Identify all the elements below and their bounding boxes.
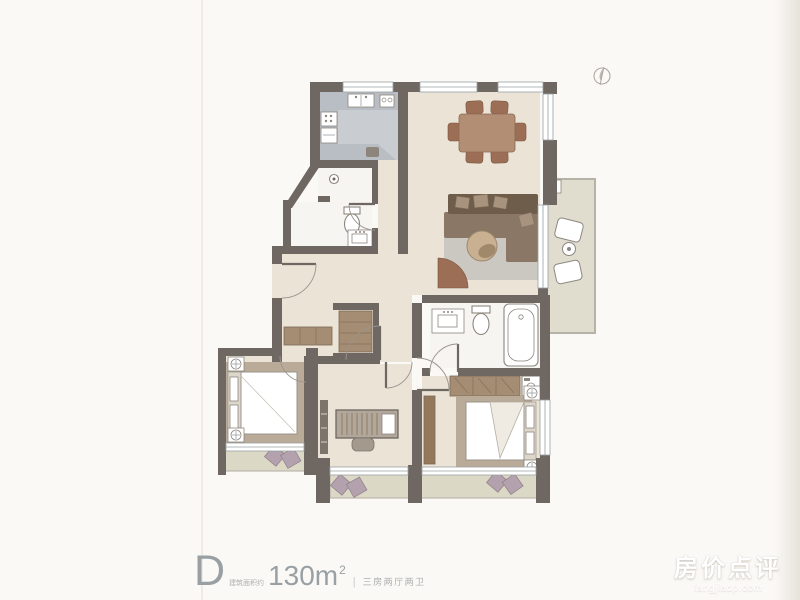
faucet-dot (363, 231, 365, 233)
dining-chair (448, 123, 460, 141)
hall-floor (378, 160, 398, 254)
wc-basin (352, 234, 367, 243)
burner-dot (325, 115, 327, 117)
burner-dot (325, 120, 327, 122)
cooktop-unit (321, 112, 337, 126)
compass-north-icon (592, 66, 611, 87)
bed-pillow (526, 432, 534, 454)
balcony-table-center (567, 247, 571, 251)
area-note: 建筑面积约 (229, 578, 264, 588)
bed-pillow (230, 377, 238, 401)
washer-panel (524, 378, 530, 381)
dining-table (459, 114, 515, 152)
dining-chair (466, 101, 484, 115)
faucet-dot (359, 231, 361, 233)
unit-caption: D 建筑面积约 130m 2 | 三房两厅两卫 (194, 550, 426, 593)
scan-edge-shadow (774, 0, 800, 600)
toilet-tank (472, 306, 490, 313)
burner-dot (330, 120, 332, 122)
bookshelf (320, 400, 328, 454)
toilet-bowl (473, 314, 489, 335)
area-value: 130m (268, 560, 338, 592)
shower-partition (318, 196, 330, 202)
basin (438, 315, 457, 327)
desk-pad (382, 414, 395, 434)
fridge (321, 128, 337, 143)
bed-pillow (526, 406, 534, 428)
bed-pillow (230, 405, 238, 429)
tall-cabinet (424, 396, 435, 464)
kettle (366, 147, 379, 157)
bed (241, 372, 297, 434)
unit-letter: D (194, 550, 225, 593)
dining-chair (514, 123, 526, 141)
burner-dot (330, 115, 332, 117)
entry-bench (284, 327, 332, 345)
room-layout-text: 三房两厅两卫 (363, 575, 426, 588)
faucet-dot (365, 96, 367, 98)
faucet-dot (443, 311, 445, 313)
sofa-pillow (473, 194, 488, 207)
area-exponent: 2 (339, 563, 346, 577)
living-set (438, 194, 540, 288)
toilet-tank (344, 207, 360, 214)
faucet-dot (451, 311, 453, 313)
desk-chair (352, 438, 374, 451)
caption-divider: | (353, 576, 356, 588)
scanned-floorplan-page: D 建筑面积约 130m 2 | 三房两厅两卫 房价点评 fangjiadp.c… (0, 0, 800, 600)
faucet-dot (355, 231, 357, 233)
floorplan-drawing (0, 0, 800, 600)
sofa-pillow (493, 196, 508, 209)
closet-shelf (339, 311, 372, 352)
bathtub-inner (508, 309, 534, 361)
dining-chair (491, 101, 509, 115)
sofa-pillow (455, 196, 469, 209)
faucet-dot (447, 311, 449, 313)
faucet-dot (355, 96, 357, 98)
shower-head-dot (333, 178, 336, 181)
